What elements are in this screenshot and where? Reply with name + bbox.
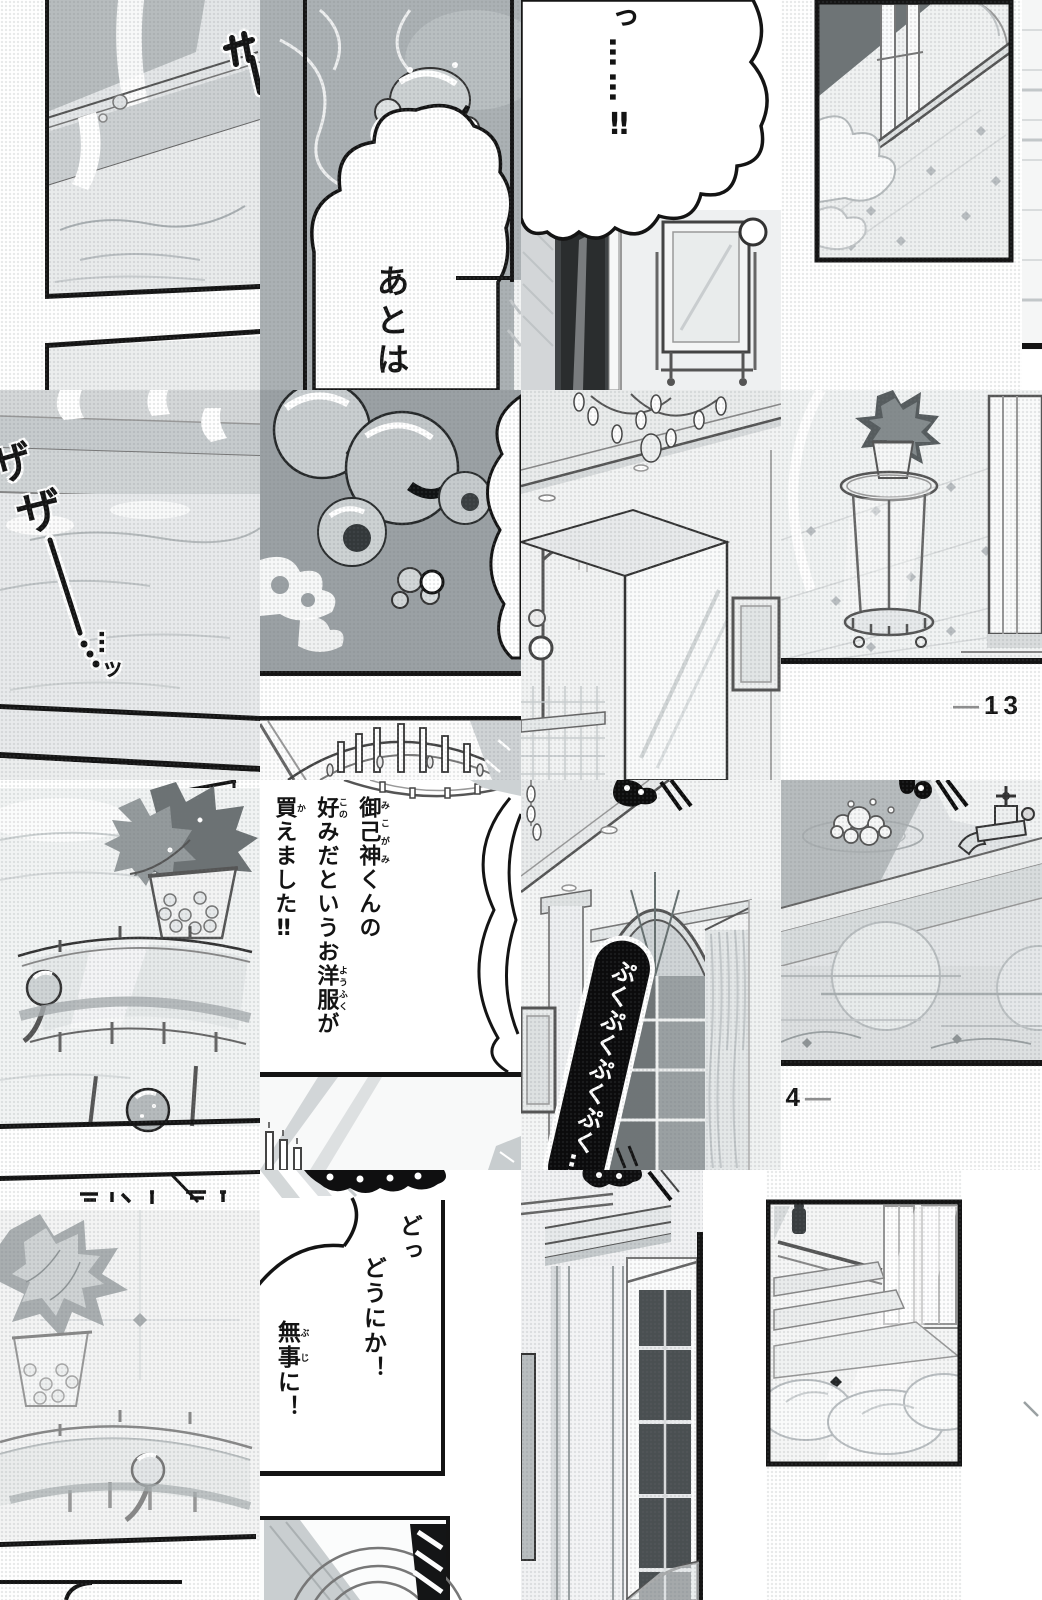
- tile-bathroom-shower-stall: [521, 390, 781, 780]
- tile-arched-window-sfx: ぷくぷくぷくぷく…: [521, 780, 781, 1170]
- tile-bath-steps-steam: [766, 1170, 962, 1600]
- page-number-digits: 34: [781, 1082, 805, 1112]
- artwork-steamy-cart: [0, 1170, 260, 1600]
- artwork-plant-cart: [781, 390, 1042, 780]
- tile-dialogue-bought-clothes: 御己神みこがみくんの 好このみだというお洋服ようふくが 買かえました‼: [260, 780, 521, 1170]
- artwork-poinsettia-cart: [0, 780, 260, 1170]
- tile-foam-bubbles-closeup: [260, 390, 521, 780]
- tile-plant-cart-tub: —13: [781, 390, 1042, 780]
- tile-window-tiled-floor: [781, 0, 1022, 390]
- dialogue-line-2: 好このみだというお洋服ようふくが: [314, 796, 347, 1036]
- dialogue-line-3: 買かえました‼: [272, 796, 305, 943]
- artwork-shower-stall: [521, 390, 781, 780]
- manga-page-tiles: あとは っ……‼: [0, 0, 1042, 1600]
- page-number-fragment-left: —13: [953, 690, 1023, 721]
- dialogue-safe-line-1: どっ: [396, 1214, 420, 1264]
- tile-dialogue-somehow-safe: どっ どうにか！ 無事ぶじに！: [260, 1170, 521, 1600]
- tile-steamy-plant-cart: [0, 1170, 260, 1600]
- stray-diagonal-mark: [1022, 1400, 1040, 1418]
- artwork-bath-steps: [766, 1170, 962, 1600]
- tile-bathtub-surface-bubble: 34—: [781, 780, 1042, 1170]
- dialogue-safe-line-3: 無事ぶじに！: [274, 1320, 308, 1420]
- tile-edge-sliver: [1022, 0, 1042, 350]
- page-number-dash: —: [805, 1082, 836, 1112]
- page-number-fragment-right: 34—: [781, 1082, 836, 1113]
- tile-poinsettia-glass-cart: [0, 780, 260, 1170]
- dialogue-line-1: 御己神みこがみくんの: [356, 796, 389, 940]
- sfx-water-pour-tail: …ッ: [94, 630, 119, 684]
- tile-bathtub-rim-splash: [0, 0, 260, 390]
- artwork-window-floor: [781, 0, 1022, 390]
- tile-bathwater-bubble-atowa: あとは: [260, 0, 521, 390]
- speech-bubble-text-atowa: あとは: [372, 264, 407, 381]
- artwork-pillar-window: [521, 1170, 703, 1600]
- dialogue-safe-line-2: どうにか！: [360, 1256, 384, 1381]
- artwork-pouring-water: [0, 390, 260, 780]
- tile-pillar-tall-window: [521, 1170, 703, 1600]
- artwork-foam-bubbles: [260, 390, 521, 780]
- speech-bubble-text-gasp: っ……‼: [603, 2, 635, 147]
- artwork-doorway-mirror: [521, 0, 781, 390]
- artwork-bathtub-rim: [0, 0, 260, 390]
- page-number-dash: —: [953, 690, 984, 720]
- tile-pouring-water-sfx: ザ ザ …ッ: [0, 390, 260, 780]
- page-number-digits: 13: [984, 690, 1023, 720]
- tile-gasp-bubble-doorway: っ……‼: [521, 0, 781, 390]
- artwork-edge-sliver: [1022, 0, 1042, 350]
